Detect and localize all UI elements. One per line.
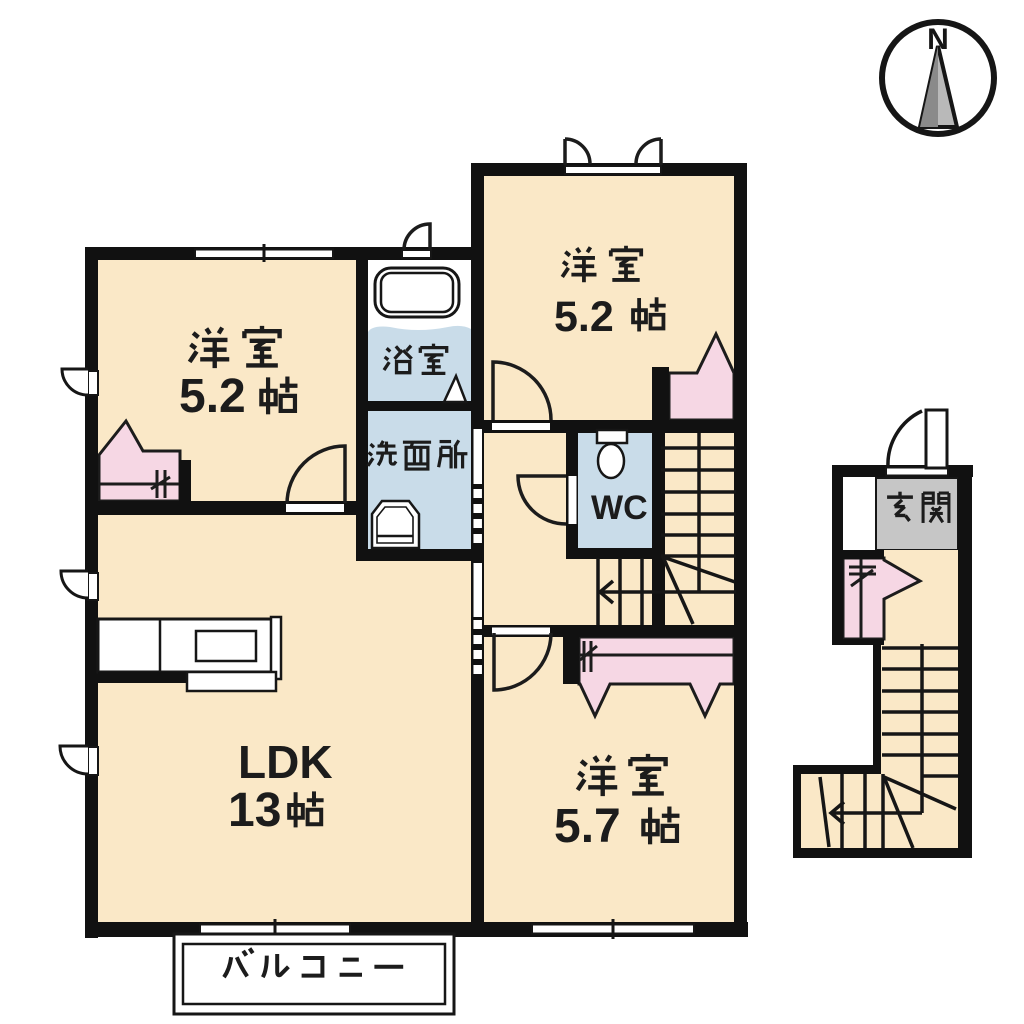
svg-text:5.7: 5.7 (554, 800, 621, 853)
svg-text:WC: WC (591, 489, 648, 527)
svg-text:5.2: 5.2 (179, 370, 246, 423)
svg-text:LDK: LDK (238, 736, 333, 788)
svg-text:13: 13 (228, 784, 281, 837)
svg-text:5.2: 5.2 (554, 293, 614, 341)
